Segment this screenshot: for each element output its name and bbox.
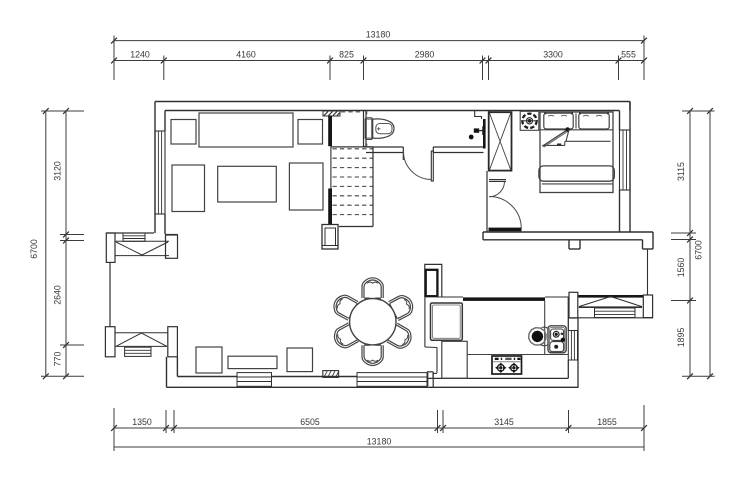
svg-text:6700: 6700: [694, 240, 704, 260]
svg-text:6505: 6505: [300, 417, 320, 427]
svg-text:1895: 1895: [676, 328, 686, 348]
svg-text:6700: 6700: [29, 239, 39, 259]
svg-text:3145: 3145: [494, 417, 514, 427]
svg-text:3115: 3115: [676, 162, 686, 181]
svg-text:555: 555: [621, 50, 636, 60]
svg-text:1350: 1350: [132, 417, 152, 427]
svg-text:3120: 3120: [53, 161, 63, 181]
svg-text:1240: 1240: [130, 50, 150, 60]
svg-text:825: 825: [339, 50, 354, 60]
svg-text:3300: 3300: [543, 50, 563, 60]
svg-text:13180: 13180: [367, 437, 392, 447]
svg-text:2640: 2640: [53, 285, 63, 305]
svg-text:2980: 2980: [415, 50, 435, 60]
svg-text:770: 770: [53, 352, 63, 367]
svg-text:13180: 13180: [366, 30, 391, 40]
svg-text:1560: 1560: [676, 258, 686, 278]
svg-text:1855: 1855: [597, 417, 617, 427]
svg-text:4160: 4160: [236, 50, 256, 60]
